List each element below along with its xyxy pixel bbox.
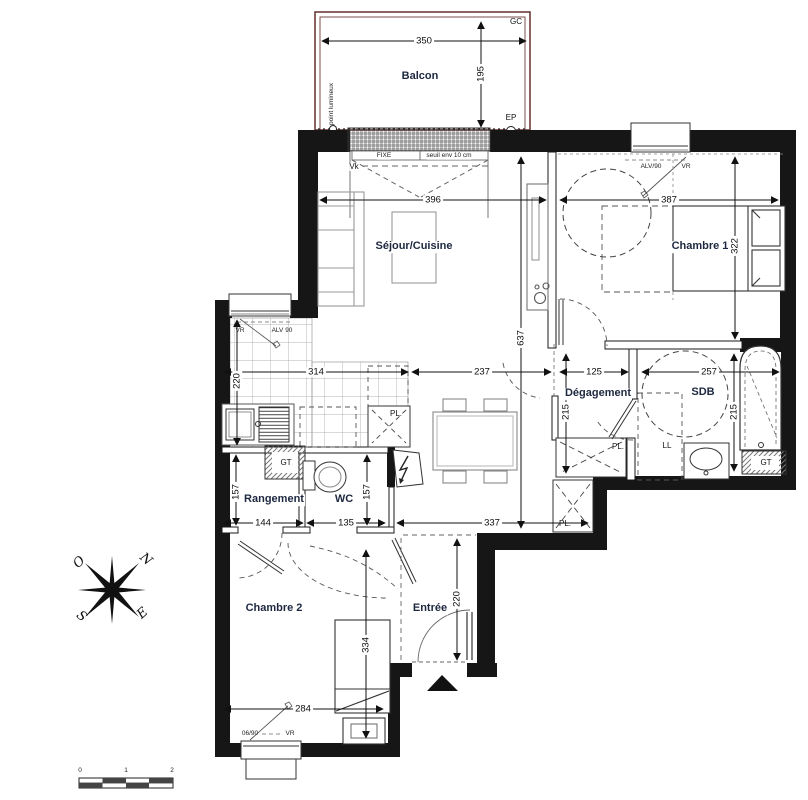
scale-tick-0: 0 xyxy=(78,768,82,775)
dim-balcony-depth: 195 xyxy=(476,64,486,84)
label-gc: GC xyxy=(510,18,522,26)
door-chambre1 xyxy=(559,299,607,346)
dim-chambre2-height: 334 xyxy=(361,635,371,655)
floor-plan-drawing xyxy=(0,0,808,800)
kitchen-tall-unit xyxy=(527,184,549,310)
room-label-chambre2: Chambre 2 xyxy=(245,603,304,615)
label-vr-kitchen: VR xyxy=(235,328,244,335)
dim-hall-width: 237 xyxy=(472,367,492,377)
washing-machine-slot xyxy=(638,393,682,480)
dim-entree-height: 220 xyxy=(452,589,462,609)
window-chambre1 xyxy=(625,123,690,198)
dim-degagement-height: 215 xyxy=(561,402,571,422)
label-seuil: seuil env 10 cm xyxy=(426,153,471,160)
dim-chambre1-height: 322 xyxy=(730,236,740,256)
electrical-panel xyxy=(393,450,423,487)
toilet xyxy=(303,461,346,492)
entrance-door xyxy=(412,610,472,662)
dining-table xyxy=(433,412,517,470)
door-chambre2-swing xyxy=(288,543,387,598)
dim-sejour-width: 396 xyxy=(423,195,443,205)
label-ll: LL xyxy=(663,442,672,450)
label-pl-degagement: PL. xyxy=(612,443,624,451)
turning-circle xyxy=(563,169,651,257)
dim-sdb-width: 257 xyxy=(699,367,719,377)
door-rangement xyxy=(237,533,284,578)
entrance-triangle-icon xyxy=(427,675,458,691)
room-label-wc: WC xyxy=(334,494,354,506)
floor-plan: Balcon Séjour/Cuisine Chambre 1 Dégageme… xyxy=(0,0,808,800)
kitchen-sink xyxy=(226,409,254,440)
dim-chambre1-width: 387 xyxy=(659,195,679,205)
room-label-entree: Entrée xyxy=(412,603,448,615)
room-label-sdb: SDB xyxy=(690,387,715,399)
dim-chambre2-width: 284 xyxy=(293,704,313,714)
dim-kitchen-height: 220 xyxy=(232,371,242,391)
label-ep: EP xyxy=(506,114,517,122)
door-wc xyxy=(310,538,416,589)
drainboard xyxy=(259,407,289,442)
label-vk: Vk xyxy=(349,163,358,171)
room-label-balcon: Balcon xyxy=(401,71,440,83)
room-label-degagement: Dégagement xyxy=(564,388,632,400)
bathtub xyxy=(740,346,781,450)
room-label-chambre1: Chambre 1 xyxy=(671,241,730,253)
dim-wc-height: 157 xyxy=(362,482,372,502)
dim-hall-length: 337 xyxy=(482,518,502,528)
label-vr-chambre1: VR xyxy=(681,164,690,171)
window-chambre2 xyxy=(241,702,301,779)
dining-set xyxy=(433,399,517,483)
label-window-chambre2: 06/90 xyxy=(242,731,258,738)
dim-degagement-width: 125 xyxy=(584,367,604,377)
dim-rangement-height: 157 xyxy=(231,482,241,502)
balcony-glazing xyxy=(348,128,490,218)
label-pl-entree: PL. xyxy=(559,520,571,528)
chest xyxy=(343,718,385,744)
scale-bar xyxy=(79,778,173,788)
room-label-rangement: Rangement xyxy=(243,494,305,506)
dim-kitchen-width: 314 xyxy=(306,367,326,377)
wardrobe xyxy=(335,620,390,713)
label-gt-kitchen: GT xyxy=(280,459,291,467)
label-alv-kitchen: ALV 90 xyxy=(272,328,293,335)
washbasin xyxy=(684,443,729,479)
label-gt-sdb: GT xyxy=(760,459,771,467)
scale-tick-2: 2 xyxy=(170,768,174,775)
door-sdb xyxy=(596,399,636,440)
dim-sdb-height: 215 xyxy=(729,402,739,422)
scale-tick-1: 1 xyxy=(124,768,128,775)
dim-sejour-height: 637 xyxy=(516,328,526,348)
label-point-lumineux: point lumineux xyxy=(329,83,336,125)
dim-balcony-width: 350 xyxy=(414,36,434,46)
room-label-sejour: Séjour/Cuisine xyxy=(374,241,453,253)
label-vr-chambre2: VR xyxy=(285,731,294,738)
dim-rangement-width: 144 xyxy=(253,518,273,528)
label-fixe: FIXE xyxy=(377,153,391,160)
furniture-slot-dashed xyxy=(602,206,673,292)
label-pl-kitchen: PL. xyxy=(390,410,402,418)
sofa xyxy=(318,192,364,306)
dim-wc-width: 135 xyxy=(336,518,356,528)
label-alv-chambre1: ALV/90 xyxy=(641,164,662,171)
